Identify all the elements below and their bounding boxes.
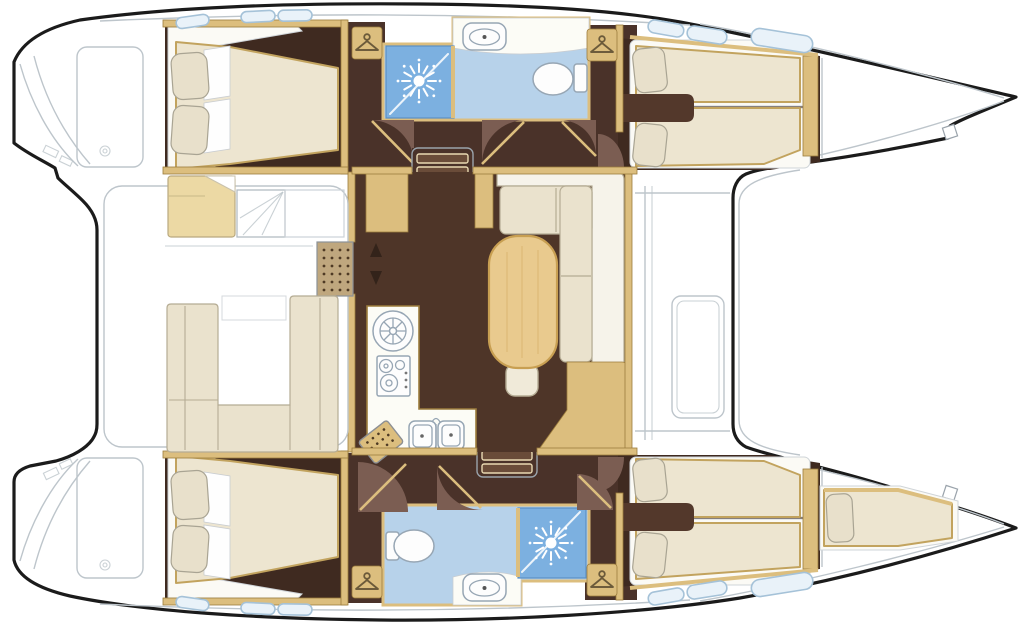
pillow xyxy=(170,470,209,520)
fwd-bulkhead xyxy=(803,469,818,569)
galley-cabinet xyxy=(366,172,408,232)
porthole xyxy=(278,10,312,22)
hanging-locker xyxy=(587,564,617,596)
cockpit-grating xyxy=(317,242,353,296)
pillow xyxy=(170,105,209,155)
catamaran-floor-plan xyxy=(0,0,1024,625)
stbd-forepeak-berth xyxy=(820,486,958,550)
hanging-locker xyxy=(352,27,382,59)
porthole xyxy=(241,10,276,23)
fwd-bulkhead xyxy=(803,56,818,156)
pillow xyxy=(632,457,668,502)
hanging-locker xyxy=(587,29,617,61)
porthole xyxy=(241,602,276,615)
berth-console xyxy=(622,503,694,531)
pillow xyxy=(632,122,668,167)
salon-table xyxy=(489,236,557,368)
pillow xyxy=(170,52,209,100)
pillow xyxy=(632,531,668,578)
helm-bench xyxy=(168,176,235,237)
pillow xyxy=(170,525,209,573)
sofa-cushion xyxy=(560,186,592,362)
berth-console xyxy=(622,94,694,122)
pillow xyxy=(632,46,668,93)
stbd-fwd-twin-cabin xyxy=(622,457,822,585)
toilet xyxy=(394,530,434,562)
hanging-locker xyxy=(352,566,382,598)
port-fwd-twin-cabin xyxy=(622,40,822,168)
pillow xyxy=(826,493,854,542)
porthole xyxy=(278,604,312,616)
salon-divider xyxy=(475,172,493,228)
toilet xyxy=(533,63,573,95)
